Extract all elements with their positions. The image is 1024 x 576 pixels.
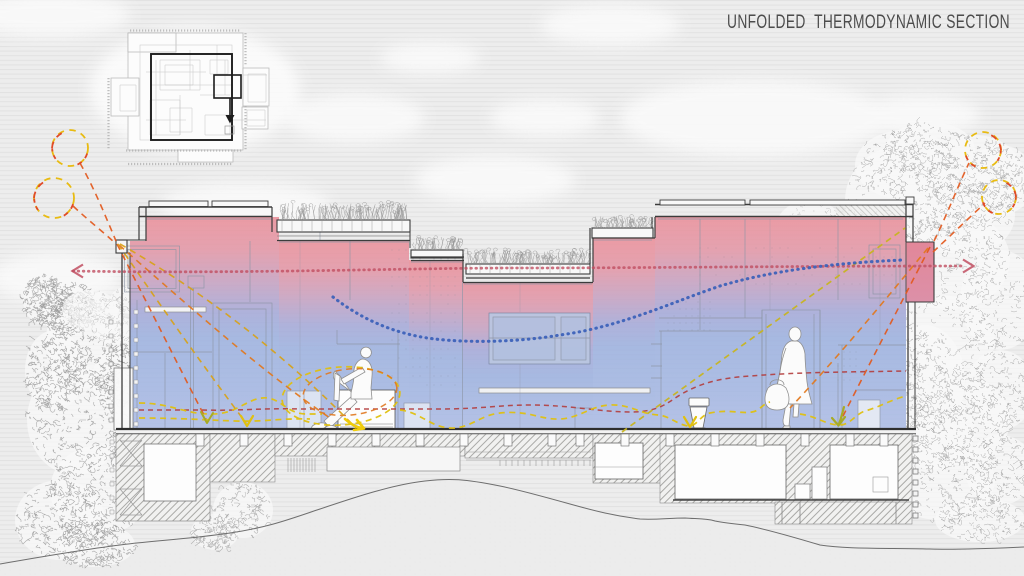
svg-text:UNFOLDED THERMODYNAMIC SECTIO: UNFOLDED THERMODYNAMIC SECTION [727,11,1010,33]
